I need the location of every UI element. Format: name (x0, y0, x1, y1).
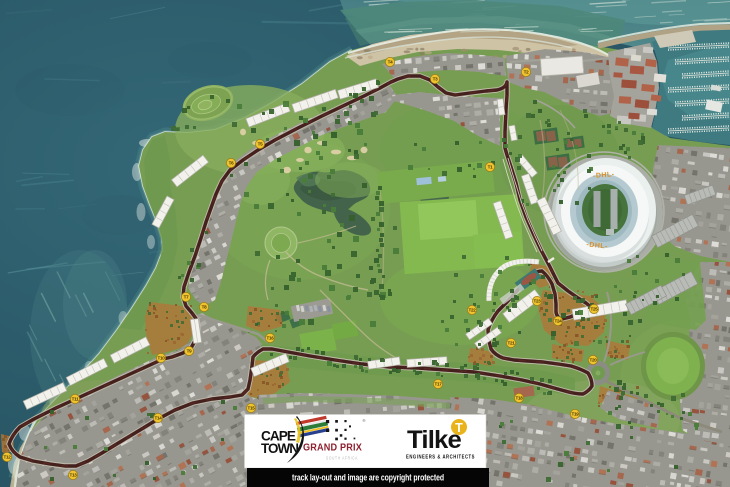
svg-text:T10: T10 (157, 356, 165, 361)
svg-text:T15: T15 (247, 406, 255, 411)
svg-text:T23: T23 (533, 299, 541, 304)
svg-text:®: ® (363, 418, 366, 423)
svg-text:TOWN: TOWN (261, 440, 299, 456)
svg-text:T25: T25 (590, 307, 598, 312)
svg-text:T: T (455, 421, 463, 435)
svg-text:T2: T2 (524, 70, 530, 75)
svg-text:T13: T13 (69, 473, 77, 478)
svg-text:T22: T22 (468, 308, 476, 313)
svg-text:T16: T16 (266, 336, 274, 341)
svg-text:T9: T9 (187, 349, 193, 354)
svg-text:T4: T4 (388, 60, 394, 65)
svg-text:SOUTH AFRICA: SOUTH AFRICA (326, 456, 358, 461)
svg-text:ENGINEERS & ARCHITECTS: ENGINEERS & ARCHITECTS (406, 455, 475, 461)
svg-text:T11: T11 (72, 397, 80, 402)
svg-text:T18: T18 (515, 396, 523, 401)
svg-text:T8: T8 (202, 305, 208, 310)
svg-text:T19: T19 (571, 412, 579, 417)
svg-text:T21: T21 (507, 341, 515, 346)
svg-text:T5: T5 (258, 142, 264, 147)
svg-text:T12: T12 (3, 455, 11, 460)
svg-text:T24: T24 (554, 319, 562, 324)
svg-text:T20: T20 (589, 358, 597, 363)
svg-text:T17: T17 (434, 382, 442, 387)
svg-text:T3: T3 (433, 77, 439, 82)
svg-text:T14: T14 (154, 416, 162, 421)
svg-text:track lay-out and image are co: track lay-out and image are copyright pr… (292, 473, 444, 483)
svg-text:T6: T6 (229, 161, 235, 166)
svg-text:T7: T7 (184, 295, 190, 300)
svg-text:GRAND PRIX: GRAND PRIX (303, 443, 362, 454)
svg-text:T1: T1 (488, 165, 494, 170)
